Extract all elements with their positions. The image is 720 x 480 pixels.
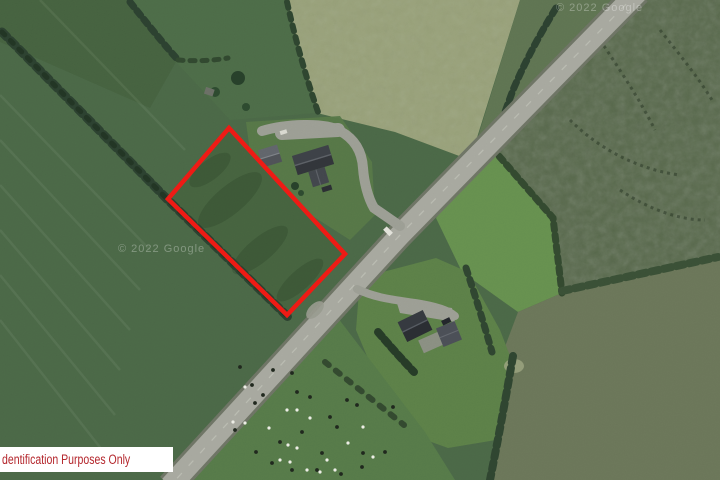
cattle-dot — [243, 385, 246, 388]
google-watermark: © 2022 Google — [556, 2, 643, 14]
cattle-dot — [288, 460, 291, 463]
cattle-dot — [286, 443, 289, 446]
cattle-dot — [345, 398, 349, 402]
cattle-dot — [254, 450, 258, 454]
cattle-dot — [290, 468, 294, 472]
cattle-dot — [335, 425, 339, 429]
cattle-dot — [290, 371, 294, 375]
cattle-dot — [253, 401, 257, 405]
cattle-dot — [295, 446, 298, 449]
aerial-imagery: © 2022 Google © 2022 Google — [0, 0, 720, 480]
cattle-dot — [278, 440, 282, 444]
cattle-dot — [333, 468, 336, 471]
cattle-dot — [278, 458, 281, 461]
cattle-dot — [355, 403, 359, 407]
cattle-dot — [391, 405, 395, 409]
cattle-dot — [315, 468, 319, 472]
google-watermark: © 2022 Google — [118, 243, 205, 255]
cattle-dot — [295, 408, 298, 411]
cattle-dot — [360, 465, 364, 469]
cattle-dot — [285, 408, 288, 411]
cattle-dot — [339, 472, 343, 476]
cattle-dot — [308, 416, 311, 419]
cattle-dot — [318, 470, 321, 473]
disclaimer-text: dentification Purposes Only — [2, 452, 130, 467]
cattle-dot — [250, 383, 254, 387]
disclaimer-label: dentification Purposes Only — [0, 447, 173, 472]
cattle-dot — [267, 426, 270, 429]
cattle-dot — [231, 420, 234, 423]
cattle-dot — [346, 441, 349, 444]
cattle-dot — [325, 458, 328, 461]
cattle-dot — [371, 455, 374, 458]
cattle-dot — [233, 428, 237, 432]
cattle-dot — [383, 450, 387, 454]
cattle-dot — [328, 415, 332, 419]
cattle-dot — [361, 425, 364, 428]
cattle-dot — [261, 393, 265, 397]
cattle-dot — [308, 395, 312, 399]
cattle-dot — [243, 421, 246, 424]
cattle-dot — [305, 468, 308, 471]
cattle-dot — [300, 430, 304, 434]
photo-grain — [0, 0, 720, 480]
cattle-dot — [361, 451, 365, 455]
cattle-dot — [271, 368, 275, 372]
cattle-dot — [270, 461, 274, 465]
cattle-dot — [238, 365, 242, 369]
map-viewport[interactable]: © 2022 Google © 2022 Google dentificatio… — [0, 0, 720, 480]
cattle-dot — [295, 390, 299, 394]
cattle-dot — [320, 451, 324, 455]
